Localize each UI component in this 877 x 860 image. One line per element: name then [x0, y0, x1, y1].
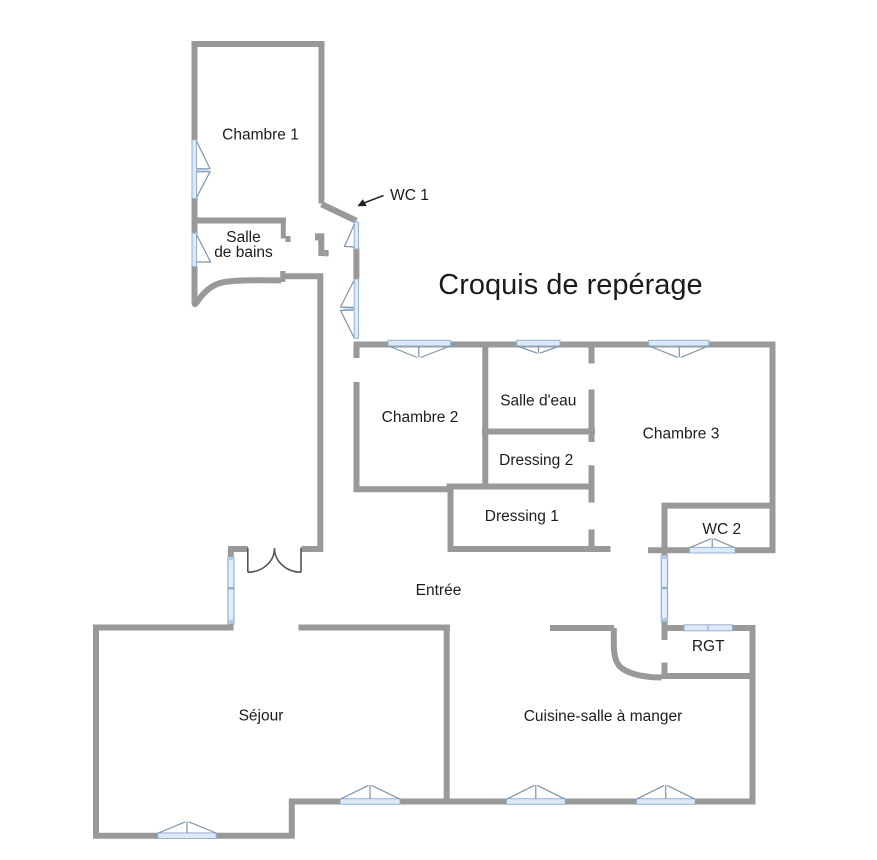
svg-text:Séjour: Séjour — [239, 708, 284, 725]
svg-text:Dressing 1: Dressing 1 — [485, 508, 559, 525]
svg-text:WC 2: WC 2 — [702, 521, 741, 538]
svg-text:Salle d'eau: Salle d'eau — [500, 392, 576, 409]
svg-text:WC 1: WC 1 — [390, 187, 429, 204]
svg-text:Entrée: Entrée — [416, 582, 462, 599]
svg-text:Chambre 2: Chambre 2 — [382, 409, 459, 426]
svg-text:Croquis de repérage: Croquis de repérage — [438, 269, 702, 301]
svg-text:Chambre 1: Chambre 1 — [222, 127, 299, 144]
svg-text:Cuisine-salle à manger: Cuisine-salle à manger — [524, 708, 683, 725]
svg-text:RGT: RGT — [692, 638, 725, 655]
svg-text:Chambre 3: Chambre 3 — [643, 425, 720, 442]
svg-text:Dressing 2: Dressing 2 — [499, 452, 573, 469]
svg-text:de bains: de bains — [214, 244, 273, 261]
